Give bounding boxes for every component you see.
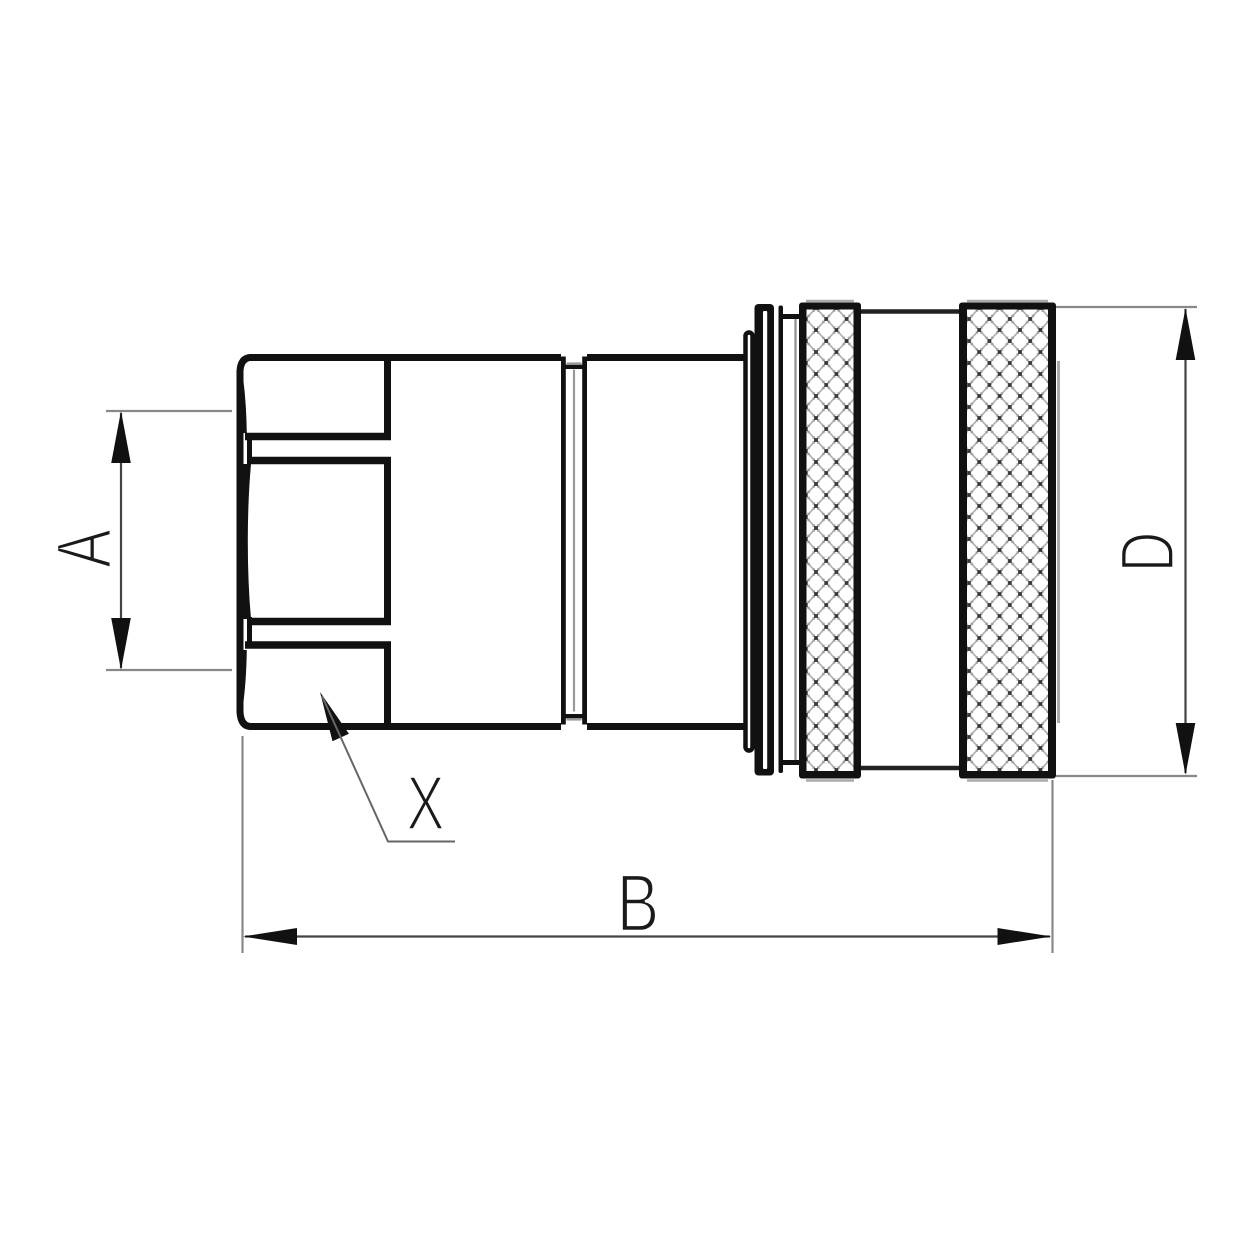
svg-text:B: B bbox=[617, 856, 660, 949]
svg-text:X: X bbox=[406, 761, 445, 847]
svg-text:A: A bbox=[40, 529, 128, 568]
svg-text:D: D bbox=[1105, 532, 1190, 573]
